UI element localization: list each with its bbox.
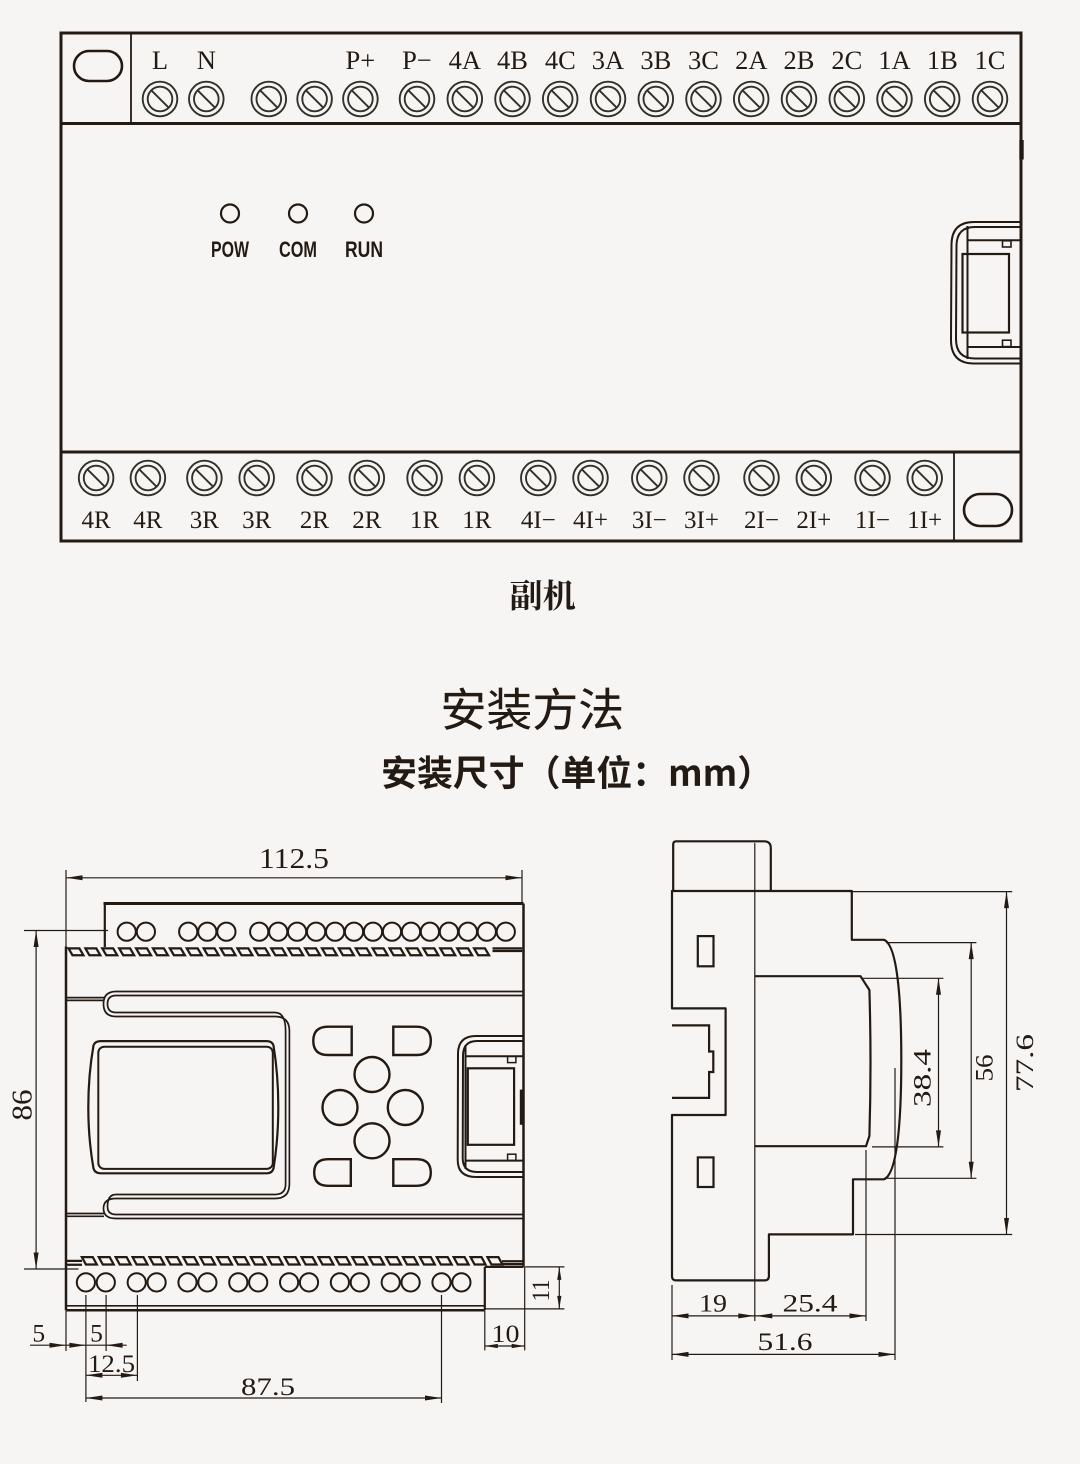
svg-text:P+: P+ — [346, 45, 376, 75]
svg-text:10: 10 — [492, 1319, 520, 1348]
svg-text:1I−: 1I− — [855, 507, 890, 534]
svg-text:L: L — [152, 45, 168, 75]
svg-text:5: 5 — [32, 1319, 45, 1348]
svg-text:3B: 3B — [640, 45, 671, 75]
svg-text:86: 86 — [6, 1090, 38, 1121]
svg-text:4I−: 4I− — [521, 507, 556, 534]
svg-text:38.4: 38.4 — [908, 1049, 937, 1107]
svg-text:2R: 2R — [352, 507, 382, 534]
svg-text:51.6: 51.6 — [758, 1327, 813, 1356]
svg-text:4C: 4C — [545, 45, 576, 75]
svg-text:112.5: 112.5 — [259, 843, 329, 875]
svg-text:COM: COM — [279, 237, 317, 262]
svg-text:2C: 2C — [831, 45, 862, 75]
svg-text:2A: 2A — [735, 45, 767, 75]
svg-text:2I−: 2I− — [744, 507, 779, 534]
svg-text:4A: 4A — [449, 45, 481, 75]
svg-text:N: N — [197, 45, 216, 75]
svg-text:12.5: 12.5 — [88, 1349, 135, 1378]
svg-text:1B: 1B — [927, 45, 958, 75]
svg-text:56: 56 — [970, 1055, 999, 1082]
svg-text:2R: 2R — [300, 507, 330, 534]
svg-text:3A: 3A — [592, 45, 624, 75]
svg-text:RUN: RUN — [345, 237, 383, 262]
svg-text:19: 19 — [699, 1289, 727, 1318]
svg-text:1A: 1A — [878, 45, 910, 75]
svg-text:4R: 4R — [133, 507, 163, 534]
svg-text:3C: 3C — [688, 45, 719, 75]
svg-text:1R: 1R — [410, 507, 440, 534]
svg-text:POW: POW — [211, 237, 249, 262]
svg-text:4I+: 4I+ — [573, 507, 608, 534]
svg-text:3I−: 3I− — [632, 507, 667, 534]
svg-text:11: 11 — [526, 1279, 555, 1301]
svg-text:4R: 4R — [82, 507, 112, 534]
svg-text:P−: P− — [402, 45, 432, 75]
svg-text:1C: 1C — [975, 45, 1006, 75]
svg-text:25.4: 25.4 — [783, 1289, 838, 1318]
svg-text:87.5: 87.5 — [241, 1372, 295, 1401]
svg-text:4B: 4B — [497, 45, 528, 75]
svg-text:2I+: 2I+ — [796, 507, 831, 534]
svg-text:3I+: 3I+ — [684, 507, 719, 534]
svg-text:5: 5 — [90, 1319, 103, 1348]
svg-text:1R: 1R — [462, 507, 492, 534]
svg-text:1I+: 1I+ — [907, 507, 942, 534]
svg-text:77.6: 77.6 — [1010, 1034, 1039, 1092]
svg-text:3R: 3R — [190, 507, 220, 534]
svg-text:3R: 3R — [242, 507, 272, 534]
svg-text:2B: 2B — [784, 45, 815, 75]
